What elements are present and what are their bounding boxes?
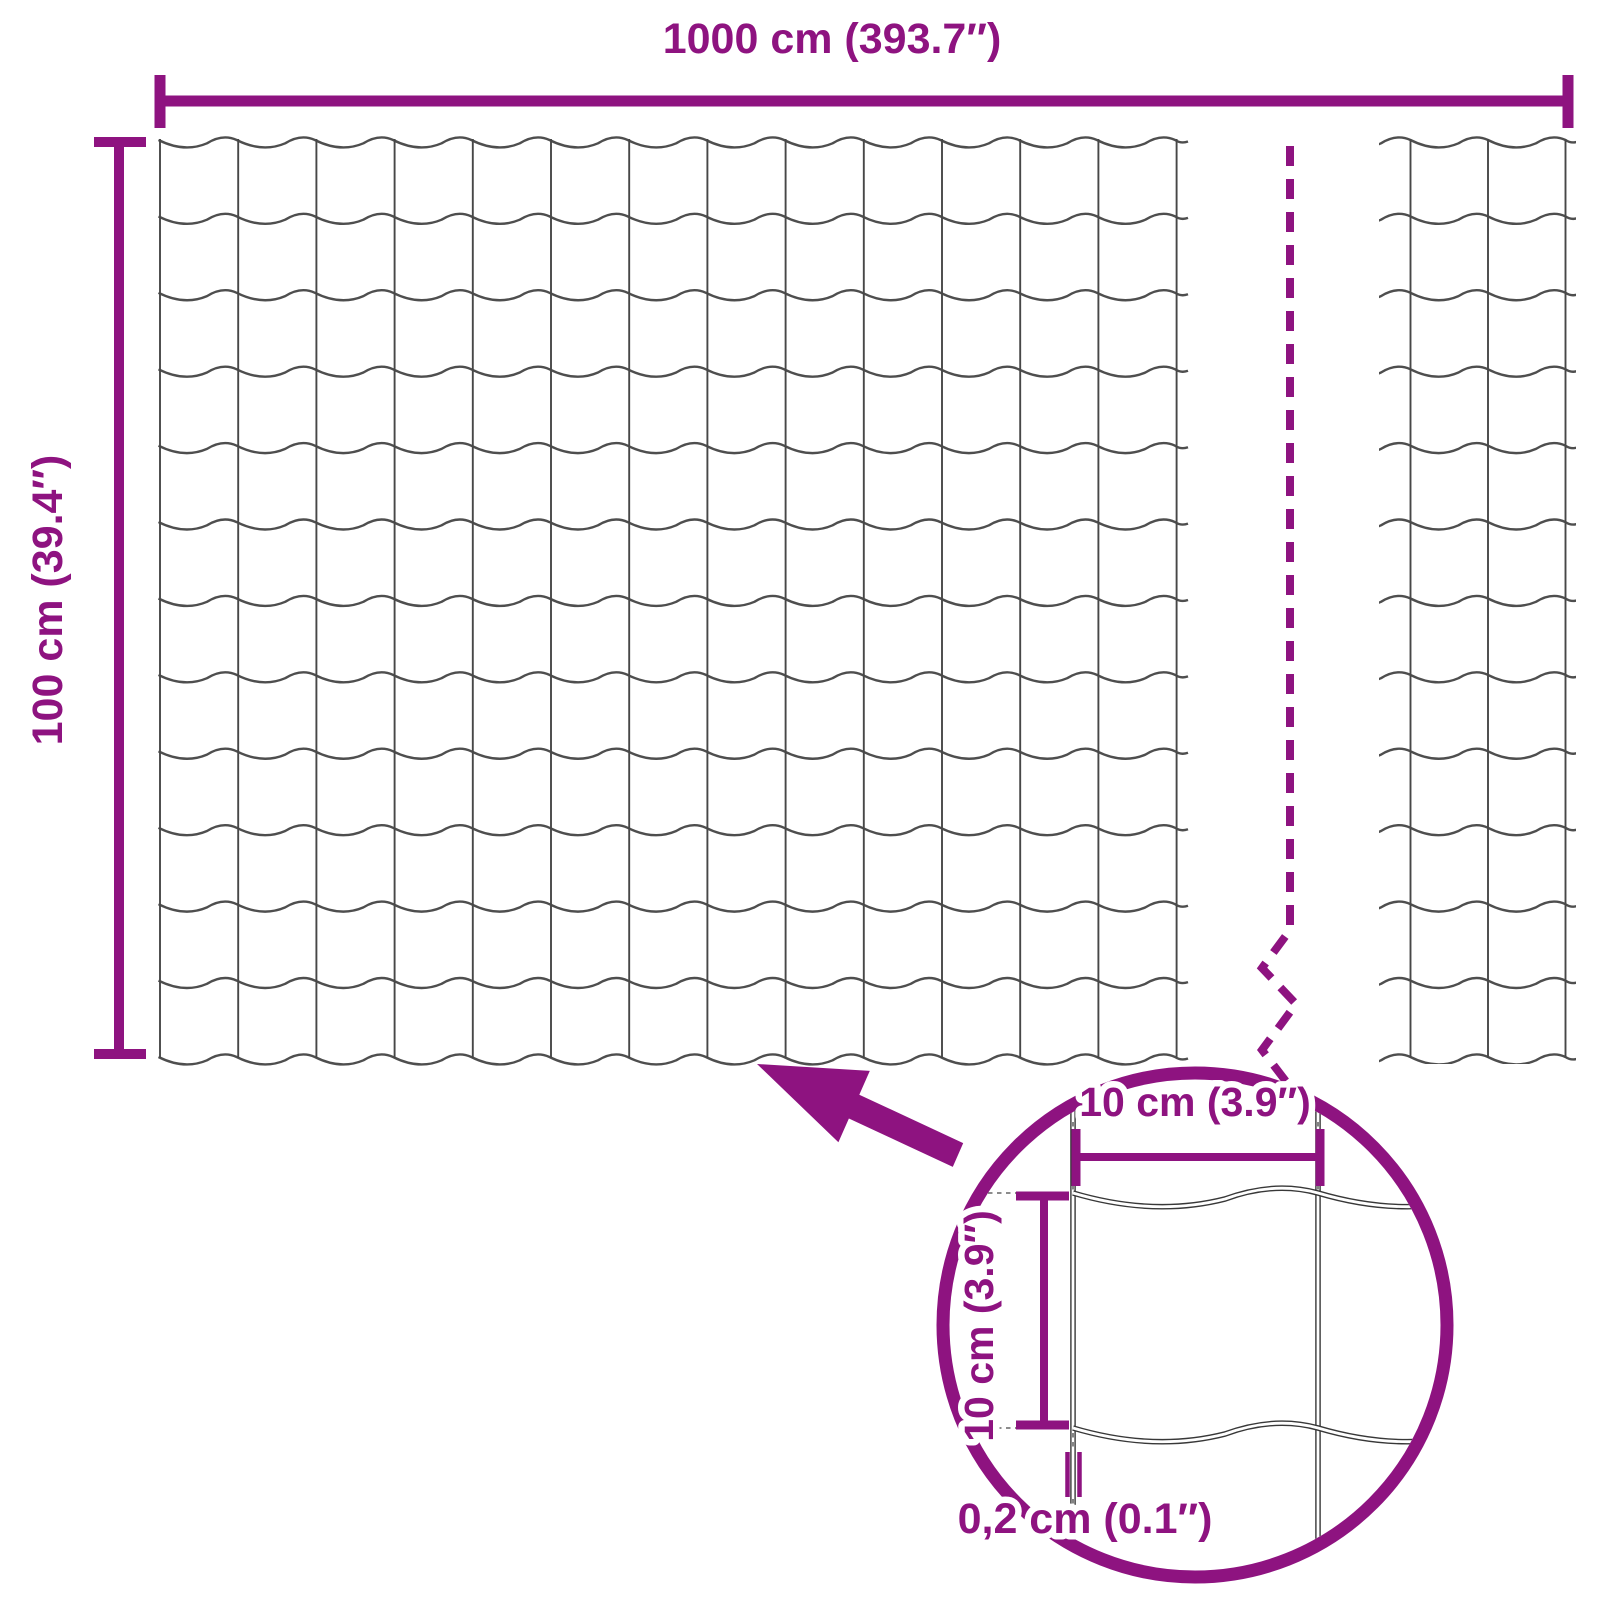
detail-cell-width-label: 10 cm (3.9″) — [1079, 1079, 1311, 1125]
horizontal-wire — [159, 902, 1189, 912]
horizontal-wire — [1333, 519, 1578, 529]
horizontal-wire — [159, 137, 1189, 147]
horizontal-wire — [1333, 902, 1578, 912]
mesh-grid-right-strip — [1333, 137, 1578, 1064]
horizontal-wire — [159, 443, 1189, 453]
horizontal-wire — [1333, 596, 1578, 606]
fence-dimension-diagram: 1000 cm (393.7″) 100 cm (39.4″) 10 cm (3… — [0, 0, 1600, 1600]
horizontal-wire — [1333, 749, 1578, 759]
width-dimension-label: 1000 cm (393.7″) — [663, 15, 1002, 63]
horizontal-wire — [1333, 825, 1578, 835]
height-dimension-label: 100 cm (39.4″) — [24, 455, 72, 746]
horizontal-wire — [1333, 367, 1578, 377]
dashed-break-line — [1262, 146, 1296, 1084]
horizontal-wire — [1333, 1054, 1578, 1064]
horizontal-wire — [1333, 214, 1578, 224]
detail-cell-height-label: 10 cm (3.9″) — [956, 1210, 1002, 1442]
horizontal-wire — [159, 367, 1189, 377]
width-dimension — [160, 75, 1568, 128]
horizontal-wire — [159, 519, 1189, 529]
horizontal-wire — [159, 290, 1189, 300]
horizontal-wire — [159, 1054, 1189, 1064]
page-background: 1000 cm (393.7″) 100 cm (39.4″) 10 cm (3… — [0, 0, 1600, 1600]
horizontal-wire — [1333, 672, 1578, 682]
arrow-up-left-icon — [757, 1064, 963, 1167]
horizontal-wire — [159, 749, 1189, 759]
horizontal-wire — [159, 214, 1189, 224]
height-dimension — [94, 141, 146, 1055]
mesh-grid — [159, 137, 1189, 1064]
horizontal-wire — [159, 825, 1189, 835]
horizontal-wire — [159, 596, 1189, 606]
horizontal-wire — [1333, 443, 1578, 453]
horizontal-wire — [1333, 290, 1578, 300]
horizontal-wire — [1333, 137, 1578, 147]
wire-thickness-label: 0,2 cm (0.1″) — [958, 1495, 1213, 1543]
horizontal-wire — [159, 978, 1189, 988]
horizontal-wire — [1333, 978, 1578, 988]
horizontal-wire — [159, 672, 1189, 682]
